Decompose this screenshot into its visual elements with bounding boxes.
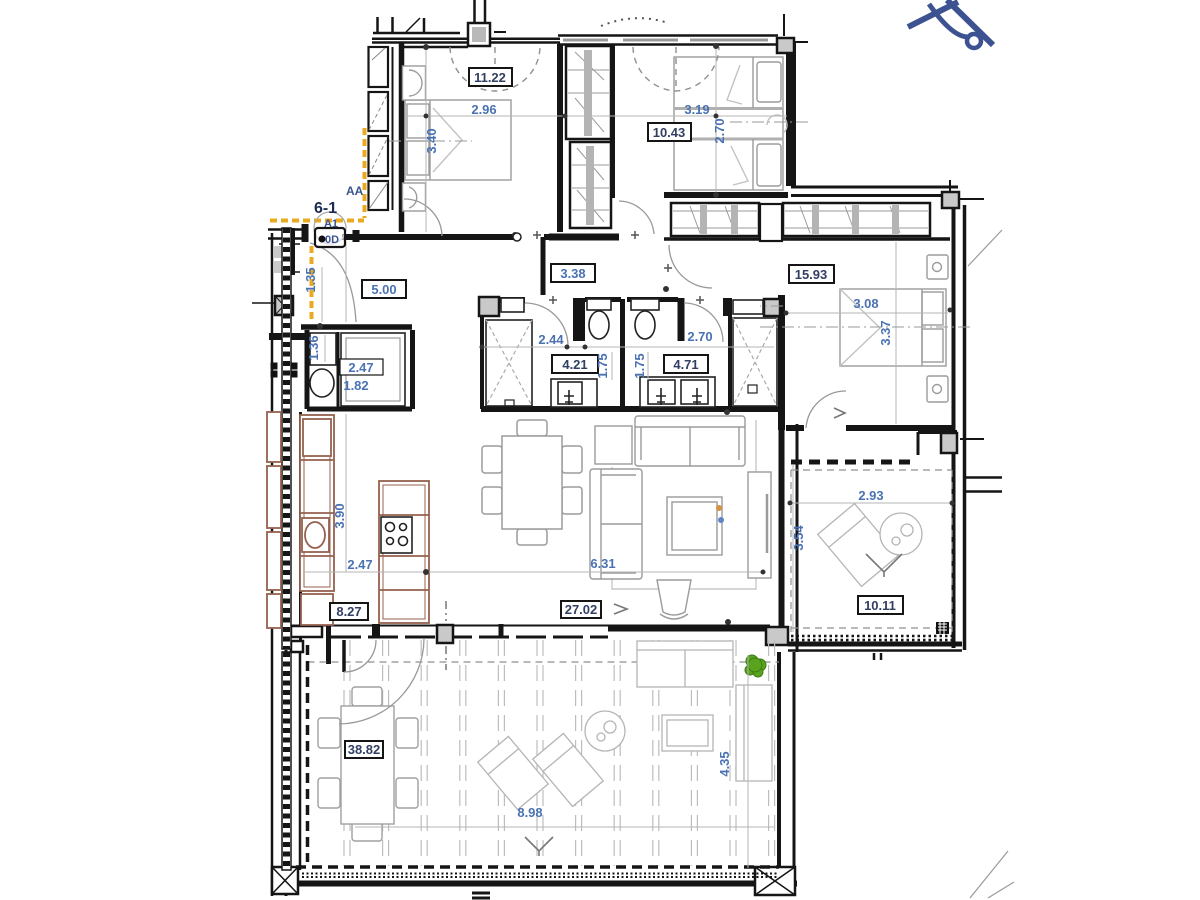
svg-text:1.35: 1.35 [303,267,318,292]
svg-text:A1: A1 [324,218,338,230]
svg-text:27.02: 27.02 [565,602,598,617]
svg-text:3.38: 3.38 [560,266,585,281]
svg-text:1.82: 1.82 [343,378,368,393]
svg-text:4.35: 4.35 [717,751,732,776]
svg-text:AA: AA [346,184,364,198]
svg-text:1.75: 1.75 [595,353,610,378]
svg-text:3.19: 3.19 [684,102,709,117]
svg-text:6-1: 6-1 [314,200,337,217]
svg-text:10.43: 10.43 [653,125,686,140]
svg-text:2.47: 2.47 [347,557,372,572]
svg-text:8.27: 8.27 [336,604,361,619]
svg-text:15.93: 15.93 [795,267,828,282]
svg-text:1.36: 1.36 [306,335,321,360]
svg-text:1.75: 1.75 [632,353,647,378]
svg-text:2.44: 2.44 [538,332,564,347]
svg-text:3.08: 3.08 [853,296,878,311]
svg-text:3.40: 3.40 [424,128,439,153]
svg-text:11.22: 11.22 [474,70,506,85]
svg-text:2.96: 2.96 [471,102,496,117]
svg-text:3.90: 3.90 [332,503,347,528]
svg-text:4.21: 4.21 [562,357,587,372]
svg-text:5.00: 5.00 [371,282,396,297]
svg-text:8.98: 8.98 [517,805,542,820]
svg-text:38.82: 38.82 [348,742,381,757]
svg-text:2.70: 2.70 [712,118,727,143]
svg-text:10.11: 10.11 [864,598,896,613]
svg-text:2.70: 2.70 [687,329,712,344]
svg-text:0D: 0D [325,234,339,246]
svg-text:4.71: 4.71 [673,357,698,372]
svg-text:2.93: 2.93 [858,488,883,503]
svg-text:3.54: 3.54 [791,525,806,551]
svg-text:6.31: 6.31 [590,556,615,571]
svg-text:3.37: 3.37 [878,320,893,345]
svg-text:2.47: 2.47 [348,360,373,375]
